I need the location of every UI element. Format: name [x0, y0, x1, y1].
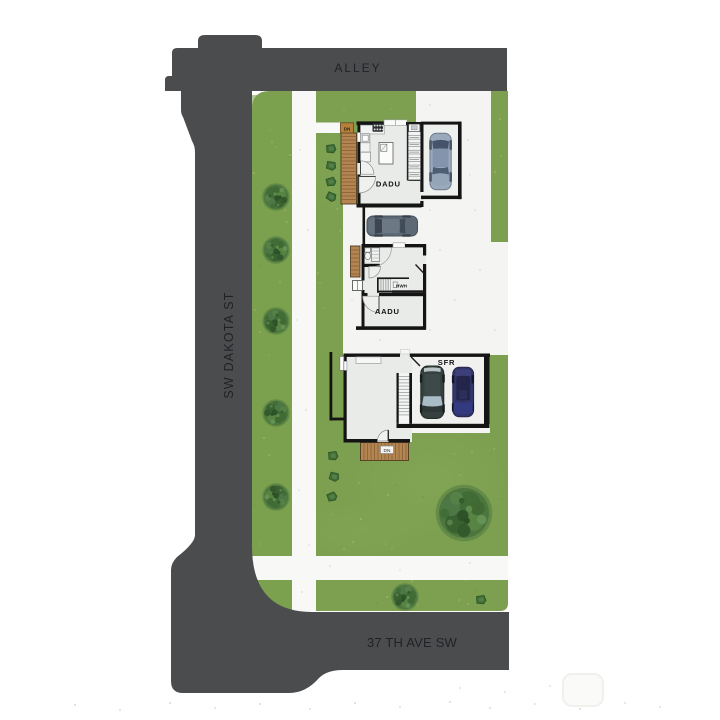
svg-text:37 TH AVE SW: 37 TH AVE SW	[367, 635, 458, 650]
svg-text:DN: DN	[384, 448, 391, 454]
svg-text:DADU: DADU	[376, 179, 401, 188]
svg-text:DN: DN	[344, 127, 351, 132]
svg-text:SW DAKOTA ST: SW DAKOTA ST	[222, 291, 236, 398]
svg-text:AADU: AADU	[375, 307, 400, 316]
svg-text:ALLEY: ALLEY	[334, 61, 381, 75]
svg-text:SFR: SFR	[438, 358, 456, 367]
svg-text:HWH: HWH	[396, 283, 408, 288]
